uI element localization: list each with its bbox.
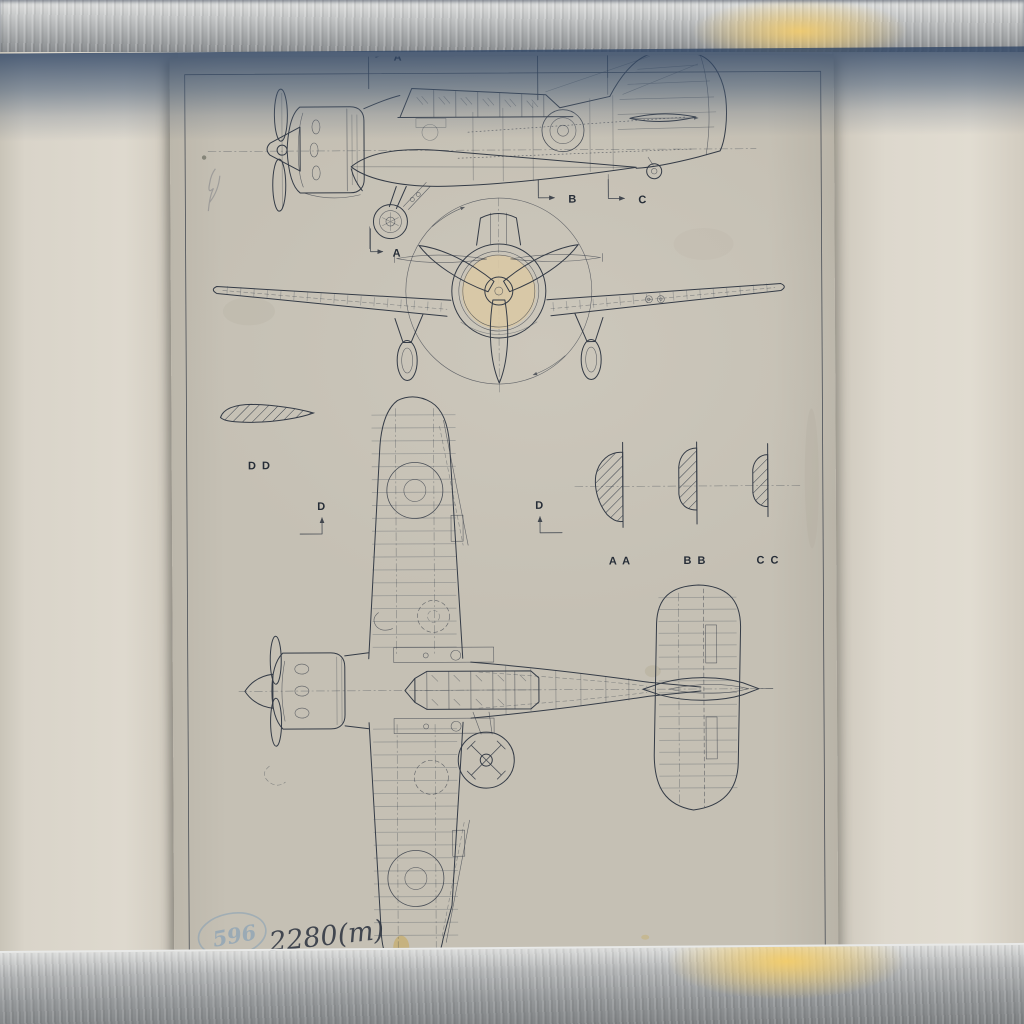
top-metal-bar [0, 0, 1024, 52]
section-label-b-bottom: B [568, 194, 578, 206]
section-label-d-right: D [535, 500, 545, 512]
blueprint-sheet: A B C B C A [170, 54, 839, 979]
left-mat-panel [0, 46, 178, 960]
drawing-border [185, 71, 826, 956]
fuselage-sections: A A B B C C [575, 441, 803, 567]
front-view [213, 197, 785, 394]
bottom-metal-bar [0, 943, 1024, 1024]
section-label-bb: B B [683, 555, 707, 567]
section-label-aa: A A [609, 555, 632, 567]
blueprint-drawing: A B C B C A [170, 54, 839, 979]
section-label-dd: D D [248, 460, 272, 472]
right-mat-panel [832, 46, 1024, 958]
section-label-c-bottom: C [638, 194, 648, 206]
section-label-d-left: D [317, 501, 327, 513]
section-label-cc: C C [756, 555, 780, 567]
stamp-number: 596 [211, 919, 259, 952]
section-label-a-top: A [394, 54, 404, 63]
photo: A B C B C A [0, 0, 1024, 1024]
airfoil-section-dd: D D [220, 404, 313, 472]
pencil-scribble [196, 168, 229, 211]
side-view: A B C B C A [208, 54, 757, 260]
